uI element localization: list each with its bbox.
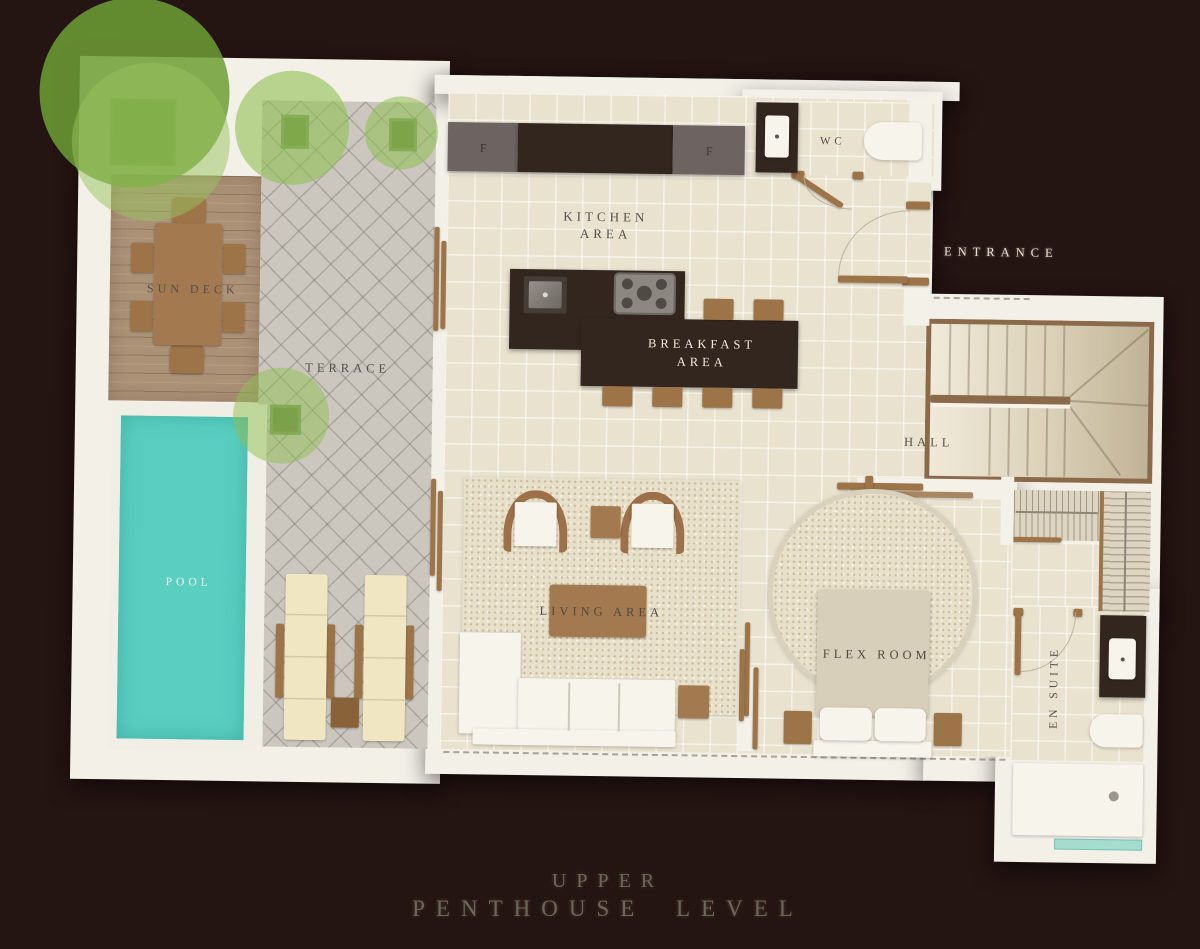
pocket-door-b	[739, 649, 745, 721]
shower-glass	[1054, 838, 1142, 850]
wc-label: WC	[820, 135, 846, 147]
sun-deck-label: SUN DECK	[147, 281, 239, 297]
kitchen-label-line1: KITCHEN	[563, 209, 648, 226]
wardrobe-hanging	[1013, 490, 1100, 541]
shelf-divider	[1123, 491, 1127, 611]
plan-title-line1: UPPER	[552, 870, 664, 893]
deck-chair	[131, 243, 153, 273]
wc-vanity	[755, 102, 798, 173]
nightstand	[784, 711, 812, 744]
floorplan-canvas: F F	[0, 0, 1200, 949]
deck-chair	[223, 244, 245, 274]
deck-chair	[130, 301, 152, 331]
breakfast-label-line1: BREAKFAST	[648, 336, 756, 353]
living-label: LIVING AREA	[539, 604, 663, 621]
nightstand	[933, 713, 961, 746]
ensuite-vanity	[1099, 615, 1146, 698]
ensuite-label: EN SUITE	[1048, 646, 1061, 729]
flex-label: FLEX ROOM	[823, 647, 931, 664]
wardrobe-edge	[1011, 537, 1061, 543]
bar-stool	[752, 388, 782, 408]
bar-stool	[652, 387, 682, 407]
cooktop	[613, 272, 676, 315]
entrance-door-leaf	[838, 275, 908, 283]
shower-drain	[1109, 791, 1119, 801]
floor-plan-page: { "plan": { "title": { "line1": "UPPER",…	[0, 0, 1200, 940]
breakfast-counter	[580, 318, 798, 389]
sofa-back	[472, 728, 675, 747]
terrace-label: TERRACE	[305, 360, 390, 376]
fridge-left-label: F	[480, 141, 488, 156]
bar-stool	[602, 386, 632, 406]
fridge-right-label: F	[706, 144, 714, 159]
bed-pillow	[820, 707, 872, 741]
kitchen-sink	[523, 276, 567, 314]
lounger-rail	[405, 625, 414, 699]
hall-label: HALL	[904, 435, 954, 451]
bar-stool	[703, 299, 733, 320]
wall-flex-stub	[1000, 477, 1014, 545]
sun-lounger	[363, 575, 407, 742]
lounger-rail	[326, 624, 335, 698]
ensuite-toilet	[1089, 714, 1142, 748]
wc-door-jamb-right	[852, 172, 863, 180]
pool-label: POOL	[166, 576, 212, 589]
deck-chair	[170, 345, 204, 373]
wardrobe-rail	[1016, 511, 1098, 514]
bed-base	[813, 740, 931, 758]
deck-chair	[222, 302, 244, 332]
counter-top-dark	[517, 123, 673, 174]
entrance-label: ENTRANCE	[944, 244, 1059, 261]
breakfast-label-line2: AREA	[677, 355, 727, 371]
sofa-seats	[518, 678, 676, 736]
sun-lounger	[284, 574, 328, 741]
staircase	[924, 319, 1154, 484]
side-table	[678, 685, 709, 718]
wardrobe-shelves	[1098, 491, 1151, 612]
wc-toilet	[864, 122, 923, 161]
bar-stool	[702, 388, 732, 408]
bed-pillow	[875, 708, 926, 742]
lounger-rail	[275, 624, 284, 698]
side-table	[590, 506, 620, 538]
shower-tray	[1012, 763, 1143, 837]
lounger-side-table	[331, 697, 359, 727]
sofa-chaise	[459, 632, 521, 734]
entrance-door-jamb-top	[906, 201, 930, 209]
kitchen-label-line2: AREA	[580, 226, 632, 243]
bar-stool	[753, 299, 783, 320]
lounger-rail	[354, 625, 363, 699]
plan-title-line2: PENTHOUSE LEVEL	[412, 896, 804, 922]
